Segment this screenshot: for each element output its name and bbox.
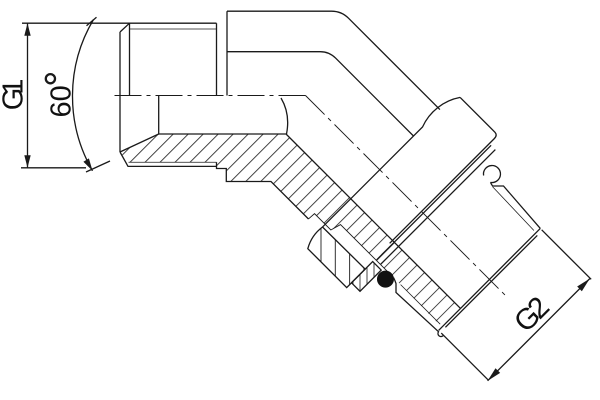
svg-text:G2: G2	[508, 291, 555, 338]
svg-text:G1: G1	[0, 80, 29, 111]
svg-text:60: 60	[46, 85, 78, 117]
